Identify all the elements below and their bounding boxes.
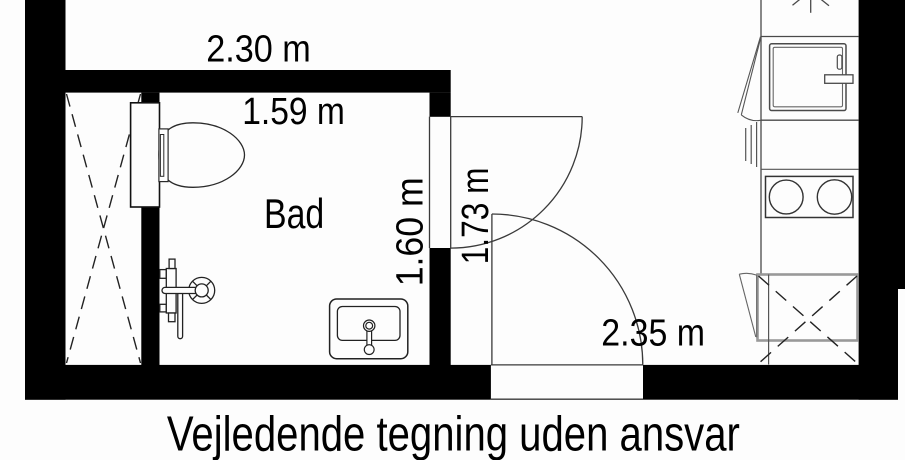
svg-text:2.35 m: 2.35 m <box>601 312 705 354</box>
svg-text:1.73 m: 1.73 m <box>455 167 497 264</box>
svg-text:2.30 m: 2.30 m <box>206 28 311 70</box>
svg-text:1.59 m: 1.59 m <box>242 91 345 133</box>
svg-text:Bad: Bad <box>264 190 324 237</box>
svg-text:Vejledende tegning uden ansvar: Vejledende tegning uden ansvar <box>167 407 740 460</box>
svg-text:1.60 m: 1.60 m <box>390 177 432 286</box>
